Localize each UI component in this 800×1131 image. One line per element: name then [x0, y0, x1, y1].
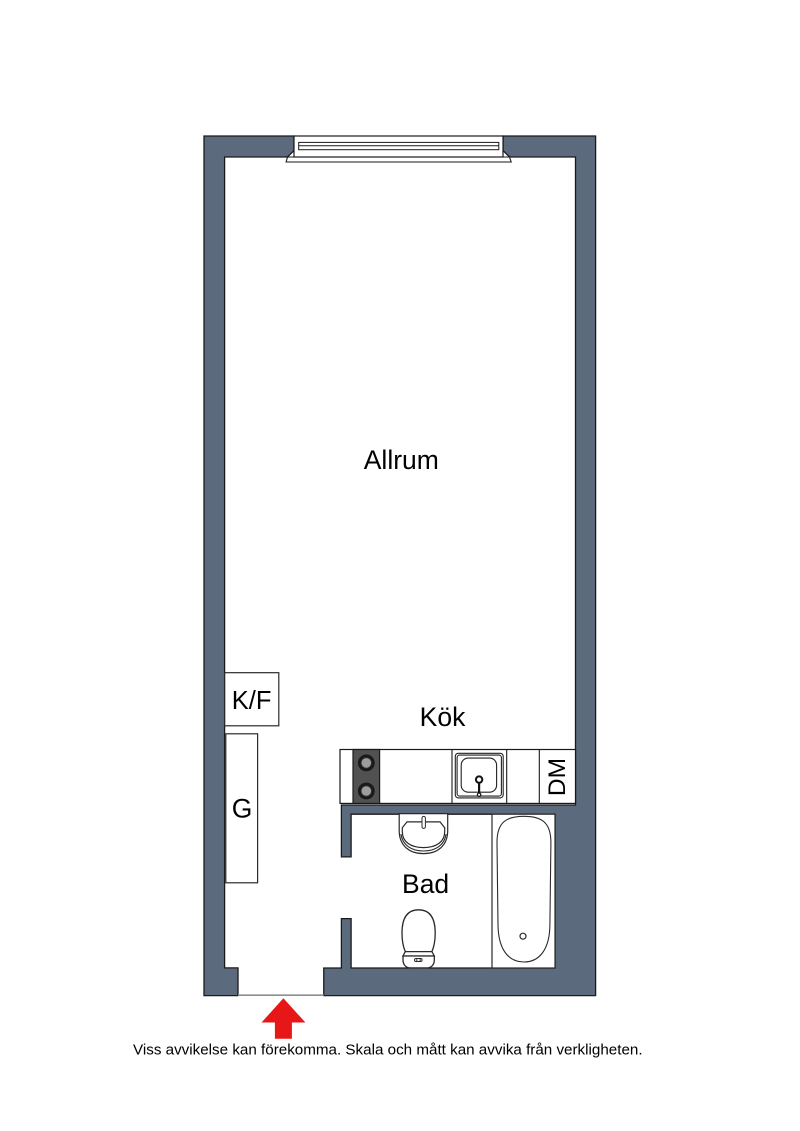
svg-text:Kök: Kök: [420, 702, 466, 732]
svg-text:DM: DM: [544, 758, 571, 796]
svg-text:Bad: Bad: [402, 869, 449, 899]
svg-text:Viss avvikelse kan förekomma.: Viss avvikelse kan förekomma. Skala och …: [133, 1042, 643, 1059]
svg-text:Allrum: Allrum: [364, 445, 439, 475]
svg-text:G: G: [232, 794, 253, 824]
svg-text:K/F: K/F: [232, 687, 272, 715]
